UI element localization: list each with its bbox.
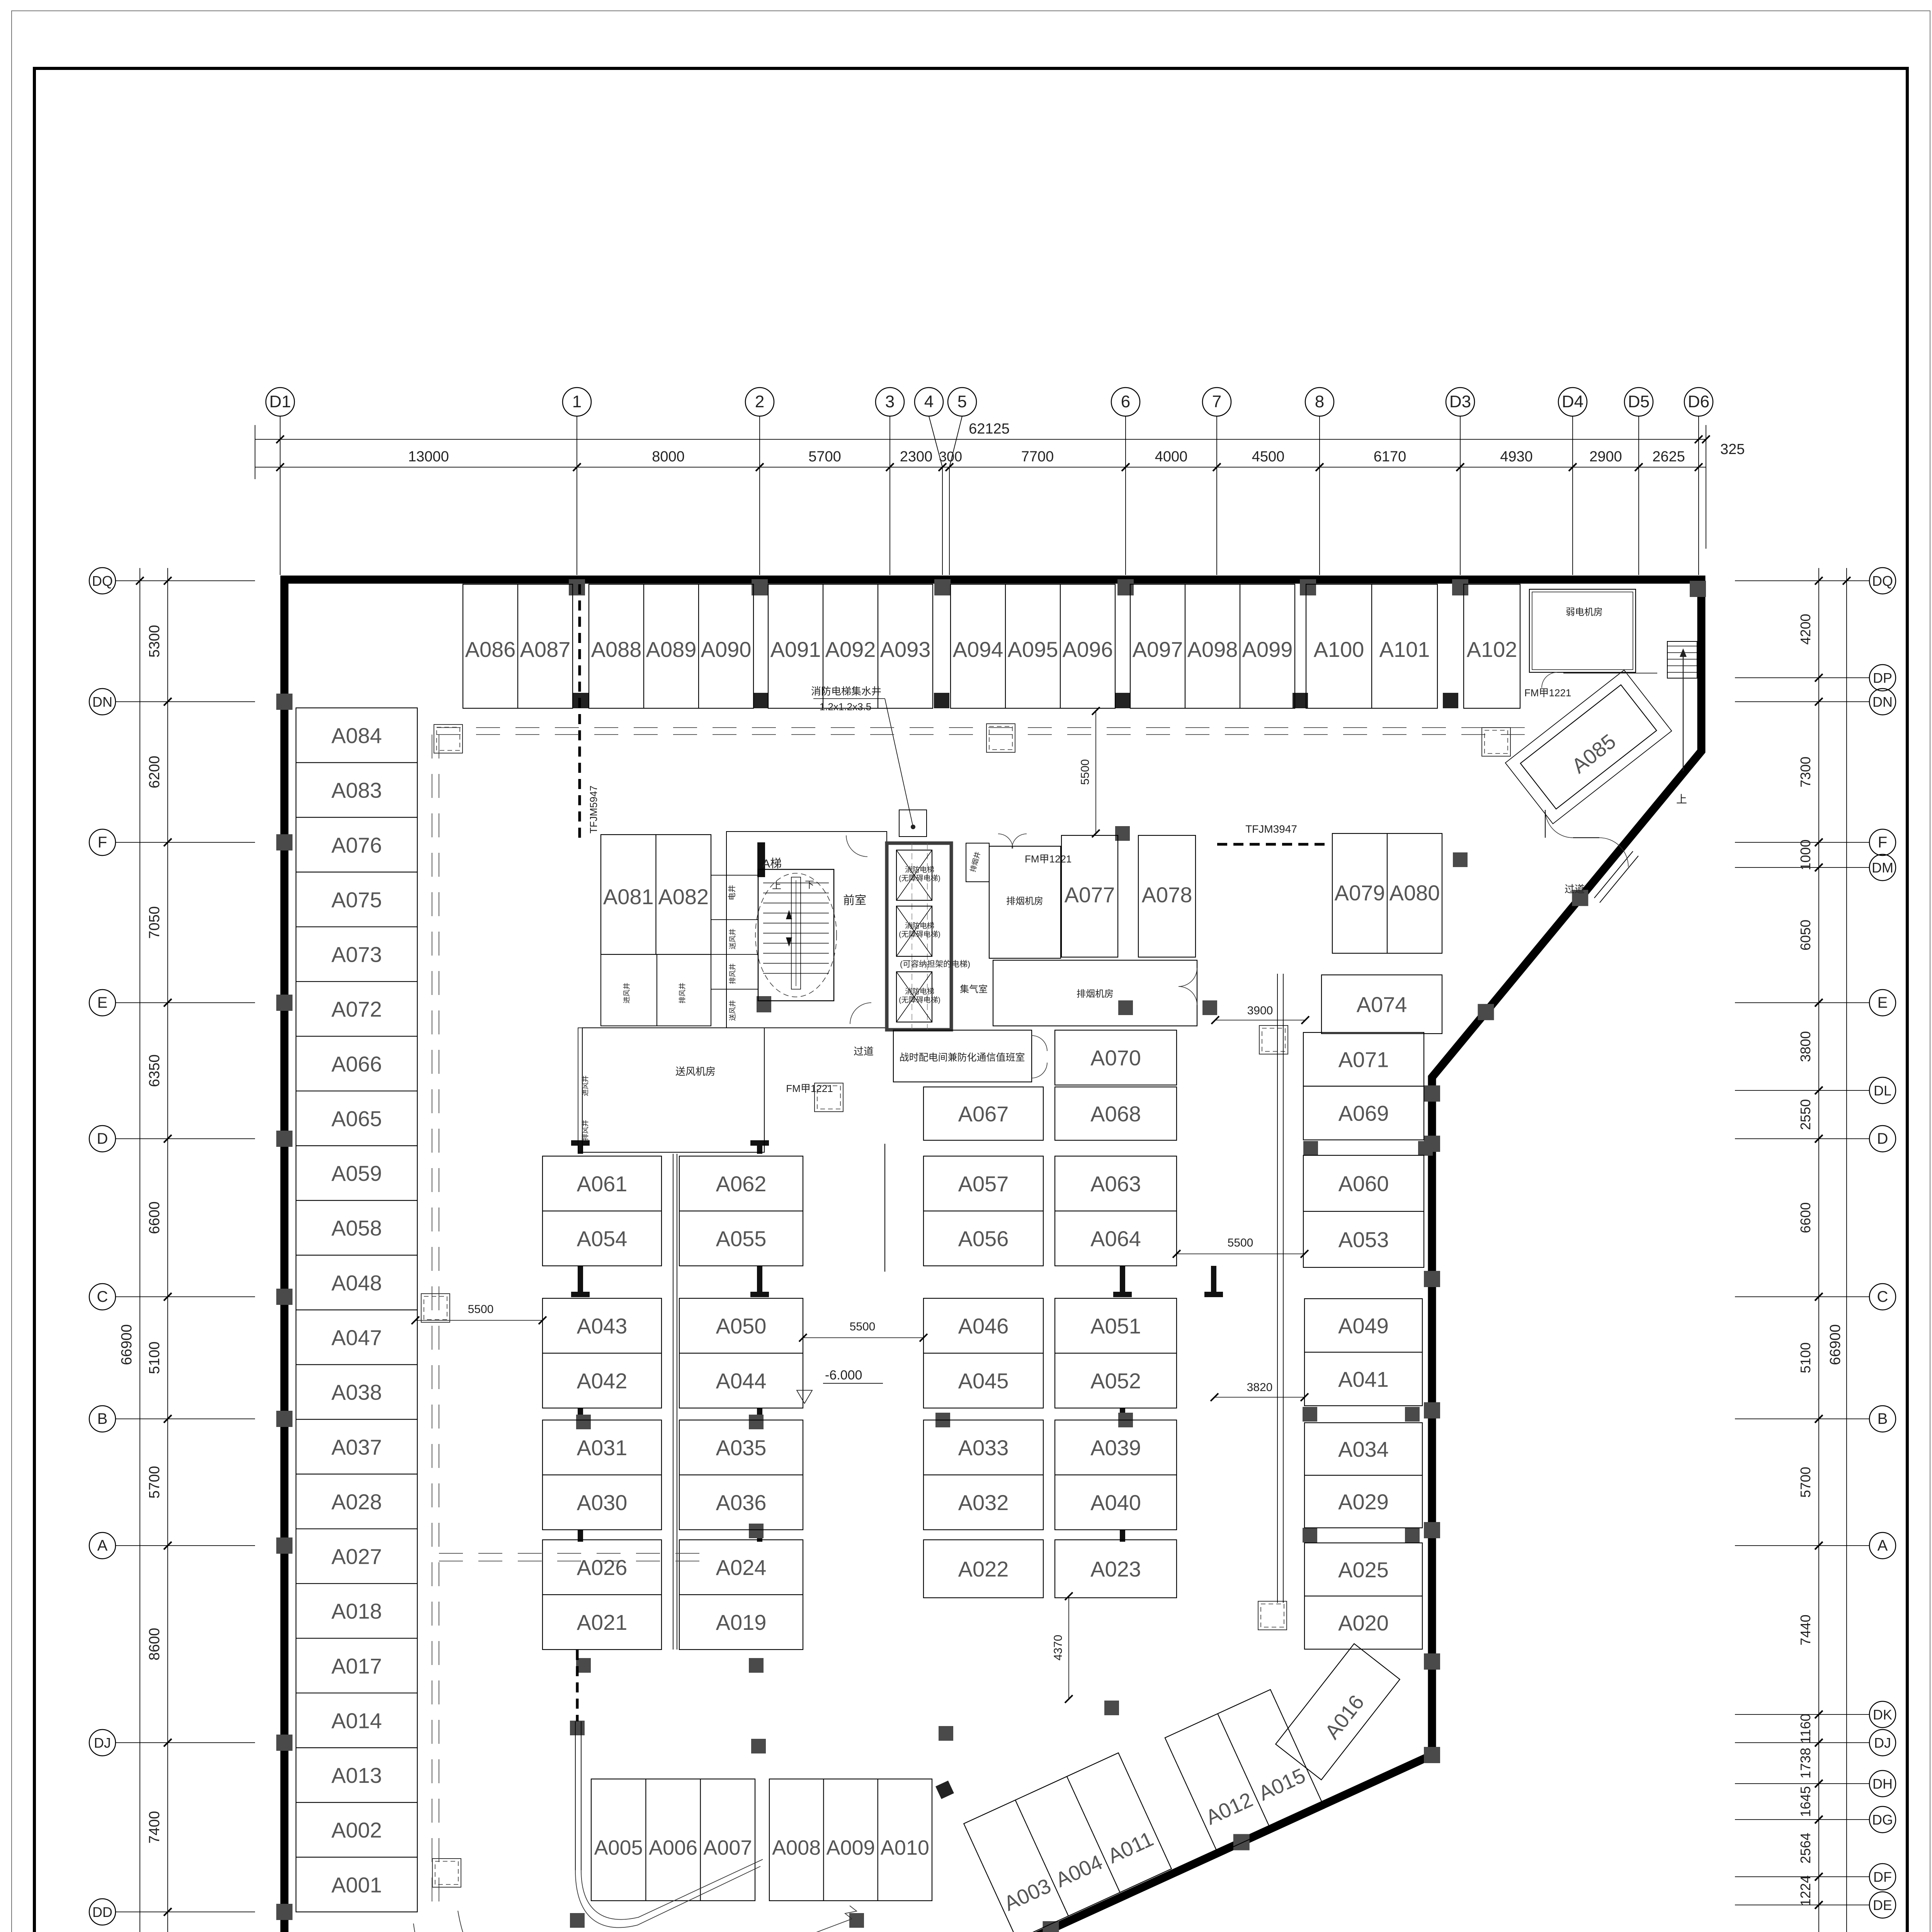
svg-text:A087: A087: [520, 637, 571, 662]
svg-text:6050: 6050: [1798, 920, 1813, 951]
svg-text:A082: A082: [658, 884, 709, 909]
svg-text:6600: 6600: [146, 1201, 163, 1234]
svg-text:A006: A006: [649, 1836, 697, 1859]
svg-text:8000: 8000: [652, 449, 685, 465]
svg-text:TFJM5947: TFJM5947: [588, 786, 599, 833]
svg-text:6600: 6600: [1798, 1202, 1813, 1233]
svg-text:6: 6: [1121, 392, 1130, 411]
svg-text:送风井: 送风井: [729, 929, 736, 949]
svg-text:A077: A077: [1065, 883, 1115, 907]
svg-text:4200: 4200: [1798, 614, 1813, 645]
svg-text:A002: A002: [332, 1818, 382, 1842]
svg-text:A086: A086: [465, 637, 516, 662]
svg-text:66900: 66900: [1827, 1324, 1844, 1365]
svg-text:DQ: DQ: [92, 573, 113, 589]
svg-text:4370: 4370: [1052, 1635, 1065, 1661]
svg-text:4000: 4000: [1155, 449, 1188, 465]
svg-text:TFJM3947: TFJM3947: [1245, 823, 1297, 835]
svg-text:排风井: 排风井: [582, 1120, 589, 1141]
svg-text:5700: 5700: [808, 449, 841, 465]
svg-text:A057: A057: [958, 1172, 1009, 1196]
svg-text:A: A: [1878, 1537, 1888, 1554]
svg-text:DG: DG: [1872, 1812, 1893, 1828]
svg-text:5100: 5100: [146, 1342, 163, 1374]
svg-text:A102: A102: [1467, 637, 1517, 662]
svg-text:A088: A088: [591, 637, 642, 662]
svg-text:A053: A053: [1338, 1228, 1389, 1252]
svg-text:(无障碍电梯): (无障碍电梯): [899, 996, 940, 1004]
svg-text:DJ: DJ: [1874, 1735, 1891, 1751]
svg-text:A072: A072: [332, 997, 382, 1021]
svg-text:A056: A056: [958, 1226, 1009, 1251]
svg-text:C: C: [1877, 1288, 1888, 1305]
svg-text:4930: 4930: [1500, 449, 1533, 465]
svg-text:A032: A032: [958, 1490, 1009, 1515]
svg-text:A067: A067: [958, 1102, 1009, 1126]
svg-text:5500: 5500: [850, 1320, 876, 1333]
svg-text:A062: A062: [716, 1172, 767, 1196]
svg-text:A005: A005: [594, 1836, 643, 1859]
svg-text:A048: A048: [332, 1270, 382, 1295]
svg-text:1645: 1645: [1798, 1786, 1813, 1817]
svg-text:1.2x1.2x3.5: 1.2x1.2x3.5: [820, 701, 871, 713]
svg-text:DF: DF: [1873, 1869, 1892, 1885]
svg-text:A065: A065: [332, 1106, 382, 1131]
svg-text:7: 7: [1212, 392, 1221, 411]
svg-text:DD: DD: [92, 1904, 112, 1920]
svg-text:A091: A091: [770, 637, 821, 662]
svg-text:D6: D6: [1688, 392, 1709, 411]
svg-text:E: E: [97, 994, 108, 1011]
svg-text:A068: A068: [1090, 1102, 1141, 1126]
svg-text:7300: 7300: [1798, 757, 1813, 787]
svg-text:送风机房: 送风机房: [675, 1066, 716, 1077]
svg-text:A017: A017: [332, 1654, 382, 1678]
svg-text:A019: A019: [716, 1610, 767, 1634]
svg-text:DN: DN: [92, 694, 112, 710]
svg-text:1160: 1160: [1798, 1714, 1813, 1743]
svg-text:下: 下: [805, 880, 814, 890]
svg-text:A055: A055: [716, 1226, 767, 1251]
svg-text:A022: A022: [958, 1557, 1009, 1581]
svg-text:消防电梯集水井: 消防电梯集水井: [811, 685, 881, 697]
svg-text:A010: A010: [881, 1836, 929, 1859]
svg-text:1738: 1738: [1798, 1748, 1813, 1779]
svg-text:2625: 2625: [1652, 449, 1685, 465]
svg-text:消防电梯: 消防电梯: [905, 866, 934, 874]
svg-text:2550: 2550: [1798, 1099, 1813, 1130]
svg-text:DL: DL: [1874, 1083, 1891, 1099]
svg-text:上: 上: [1676, 793, 1687, 805]
svg-text:A052: A052: [1090, 1369, 1141, 1393]
svg-text:D4: D4: [1562, 392, 1583, 411]
svg-text:A059: A059: [332, 1161, 382, 1185]
svg-text:A089: A089: [646, 637, 697, 662]
svg-text:D1: D1: [269, 392, 291, 411]
svg-text:E: E: [1878, 994, 1888, 1011]
svg-text:FM甲1221: FM甲1221: [786, 1083, 833, 1094]
svg-text:A075: A075: [332, 888, 382, 912]
svg-text:消防电梯: 消防电梯: [905, 987, 934, 996]
svg-text:A063: A063: [1090, 1172, 1141, 1196]
svg-text:A008: A008: [772, 1836, 821, 1859]
svg-text:3: 3: [885, 392, 895, 411]
svg-text:5: 5: [957, 392, 967, 411]
svg-text:过道: 过道: [854, 1046, 874, 1057]
svg-text:3800: 3800: [1798, 1031, 1813, 1062]
svg-text:1000: 1000: [1798, 839, 1813, 870]
svg-text:1224: 1224: [1798, 1875, 1813, 1906]
svg-text:1: 1: [572, 392, 582, 411]
svg-text:A070: A070: [1090, 1046, 1141, 1070]
svg-text:5100: 5100: [1798, 1342, 1813, 1373]
svg-text:A094: A094: [953, 637, 1003, 662]
svg-text:A093: A093: [880, 637, 931, 662]
svg-text:A054: A054: [577, 1226, 628, 1251]
svg-text:A078: A078: [1142, 883, 1192, 907]
svg-text:66900: 66900: [119, 1324, 135, 1365]
svg-text:排烟机房: 排烟机房: [1006, 896, 1043, 906]
svg-text:A100: A100: [1314, 637, 1364, 662]
svg-text:A018: A018: [332, 1599, 382, 1623]
svg-text:F: F: [98, 834, 107, 851]
svg-text:5700: 5700: [146, 1466, 163, 1499]
svg-text:A079: A079: [1335, 881, 1385, 905]
svg-text:A028: A028: [332, 1490, 382, 1514]
svg-text:(可容纳担架的电梯): (可容纳担架的电梯): [900, 960, 970, 969]
svg-text:(无障碍电梯): (无障碍电梯): [899, 874, 940, 883]
svg-text:A076: A076: [332, 833, 382, 857]
svg-text:A001: A001: [332, 1872, 382, 1897]
svg-text:A046: A046: [958, 1314, 1009, 1338]
svg-text:A073: A073: [332, 942, 382, 967]
svg-text:5300: 5300: [146, 625, 163, 658]
svg-text:A036: A036: [716, 1490, 767, 1515]
svg-text:A梯: A梯: [762, 857, 782, 870]
svg-text:A013: A013: [332, 1763, 382, 1787]
svg-text:3820: 3820: [1247, 1381, 1273, 1394]
svg-text:FM甲1221: FM甲1221: [1025, 853, 1071, 865]
svg-text:7050: 7050: [146, 906, 163, 939]
svg-text:进风井: 进风井: [582, 1075, 589, 1096]
svg-text:战时配电间兼防化通信值班室: 战时配电间兼防化通信值班室: [899, 1052, 1025, 1063]
svg-text:排风井: 排风井: [729, 963, 736, 984]
svg-text:D: D: [1877, 1130, 1888, 1147]
svg-text:A098: A098: [1187, 637, 1238, 662]
svg-text:A035: A035: [716, 1435, 767, 1460]
svg-text:6170: 6170: [1374, 449, 1406, 465]
svg-text:A097: A097: [1133, 637, 1183, 662]
svg-text:-6.000: -6.000: [825, 1368, 862, 1383]
svg-text:A014: A014: [332, 1708, 382, 1733]
svg-text:DH: DH: [1872, 1776, 1893, 1792]
svg-text:FM甲1221: FM甲1221: [1524, 687, 1571, 699]
svg-text:DJ: DJ: [94, 1735, 111, 1751]
svg-text:A066: A066: [332, 1052, 382, 1076]
svg-text:D5: D5: [1628, 392, 1650, 411]
svg-text:A034: A034: [1338, 1437, 1389, 1461]
svg-text:A: A: [97, 1537, 108, 1554]
svg-text:A037: A037: [332, 1435, 382, 1459]
svg-text:A044: A044: [716, 1369, 767, 1393]
svg-text:13000: 13000: [408, 449, 449, 465]
svg-text:A092: A092: [825, 637, 876, 662]
svg-text:电井: 电井: [728, 885, 736, 900]
svg-text:A020: A020: [1338, 1611, 1389, 1635]
svg-text:B: B: [97, 1410, 108, 1427]
svg-text:A050: A050: [716, 1314, 767, 1338]
svg-text:D3: D3: [1449, 392, 1471, 411]
svg-text:6350: 6350: [146, 1054, 163, 1087]
svg-text:7400: 7400: [146, 1811, 163, 1844]
svg-text:DQ: DQ: [1872, 573, 1893, 589]
svg-text:2900: 2900: [1589, 449, 1622, 465]
svg-text:A047: A047: [332, 1325, 382, 1350]
svg-text:A030: A030: [577, 1490, 628, 1515]
svg-text:A043: A043: [577, 1314, 628, 1338]
svg-text:5500: 5500: [1228, 1236, 1253, 1249]
svg-text:A023: A023: [1090, 1557, 1141, 1581]
svg-text:弱电机房: 弱电机房: [1566, 607, 1603, 617]
svg-text:排烟机房: 排烟机房: [1077, 989, 1114, 999]
svg-text:进风井: 进风井: [623, 983, 631, 1003]
svg-text:A041: A041: [1338, 1367, 1389, 1391]
svg-text:B: B: [1878, 1410, 1888, 1427]
svg-text:DM: DM: [1872, 860, 1893, 876]
svg-text:2: 2: [755, 392, 764, 411]
svg-text:A101: A101: [1379, 637, 1430, 662]
svg-text:A095: A095: [1008, 637, 1058, 662]
svg-text:5700: 5700: [1798, 1467, 1813, 1498]
svg-text:过道: 过道: [1565, 883, 1585, 895]
svg-text:A069: A069: [1338, 1101, 1389, 1126]
svg-text:排风井: 排风井: [679, 983, 686, 1003]
svg-text:消防电梯: 消防电梯: [905, 922, 934, 930]
svg-text:A083: A083: [332, 778, 382, 803]
svg-text:A084: A084: [332, 723, 382, 748]
svg-text:A090: A090: [701, 637, 752, 662]
svg-text:A071: A071: [1338, 1048, 1389, 1072]
svg-text:前室: 前室: [843, 894, 866, 907]
svg-text:6200: 6200: [146, 756, 163, 789]
svg-text:A025: A025: [1338, 1558, 1389, 1582]
svg-text:4500: 4500: [1252, 449, 1285, 465]
svg-text:A009: A009: [826, 1836, 875, 1859]
svg-text:7440: 7440: [1798, 1614, 1813, 1645]
svg-text:5500: 5500: [468, 1303, 494, 1316]
svg-text:A064: A064: [1090, 1226, 1141, 1251]
svg-text:8600: 8600: [146, 1628, 163, 1661]
svg-text:62125: 62125: [969, 421, 1010, 437]
svg-text:A026: A026: [577, 1555, 628, 1580]
svg-text:A027: A027: [332, 1544, 382, 1569]
svg-text:D: D: [97, 1130, 108, 1147]
svg-text:8: 8: [1315, 392, 1324, 411]
svg-text:A080: A080: [1389, 881, 1440, 905]
svg-text:2300: 2300: [900, 449, 933, 465]
svg-text:325: 325: [1720, 441, 1745, 457]
svg-text:(无障碍电梯): (无障碍电梯): [899, 930, 940, 939]
svg-text:上: 上: [772, 881, 781, 891]
svg-text:300: 300: [939, 449, 962, 464]
svg-text:A007: A007: [703, 1836, 752, 1859]
svg-text:F: F: [1878, 834, 1887, 851]
svg-text:A039: A039: [1090, 1435, 1141, 1460]
svg-text:A021: A021: [577, 1610, 628, 1634]
svg-text:A051: A051: [1090, 1314, 1141, 1338]
svg-text:送风井: 送风井: [729, 1000, 736, 1021]
svg-text:A096: A096: [1063, 637, 1113, 662]
svg-text:3900: 3900: [1247, 1004, 1273, 1017]
svg-text:5500: 5500: [1079, 759, 1092, 785]
svg-text:A040: A040: [1090, 1490, 1141, 1515]
svg-text:C: C: [97, 1288, 108, 1305]
svg-text:A058: A058: [332, 1216, 382, 1240]
svg-text:A081: A081: [603, 884, 654, 909]
svg-text:A060: A060: [1338, 1172, 1389, 1196]
svg-text:2564: 2564: [1798, 1833, 1813, 1864]
svg-text:A033: A033: [958, 1435, 1009, 1460]
svg-text:A099: A099: [1242, 637, 1293, 662]
svg-text:A024: A024: [716, 1555, 767, 1580]
svg-text:A042: A042: [577, 1369, 628, 1393]
svg-text:集气室: 集气室: [960, 984, 988, 995]
svg-text:DN: DN: [1872, 694, 1893, 710]
svg-text:A038: A038: [332, 1380, 382, 1405]
svg-text:4: 4: [924, 392, 934, 411]
svg-text:A074: A074: [1357, 992, 1407, 1017]
svg-text:7700: 7700: [1021, 449, 1054, 465]
svg-text:A061: A061: [577, 1172, 628, 1196]
svg-text:DP: DP: [1873, 670, 1892, 686]
svg-text:DK: DK: [1873, 1707, 1892, 1723]
svg-text:A031: A031: [577, 1435, 628, 1460]
svg-text:A045: A045: [958, 1369, 1009, 1393]
svg-text:DE: DE: [1873, 1897, 1892, 1913]
svg-text:A049: A049: [1338, 1313, 1389, 1338]
svg-text:A029: A029: [1338, 1490, 1389, 1514]
